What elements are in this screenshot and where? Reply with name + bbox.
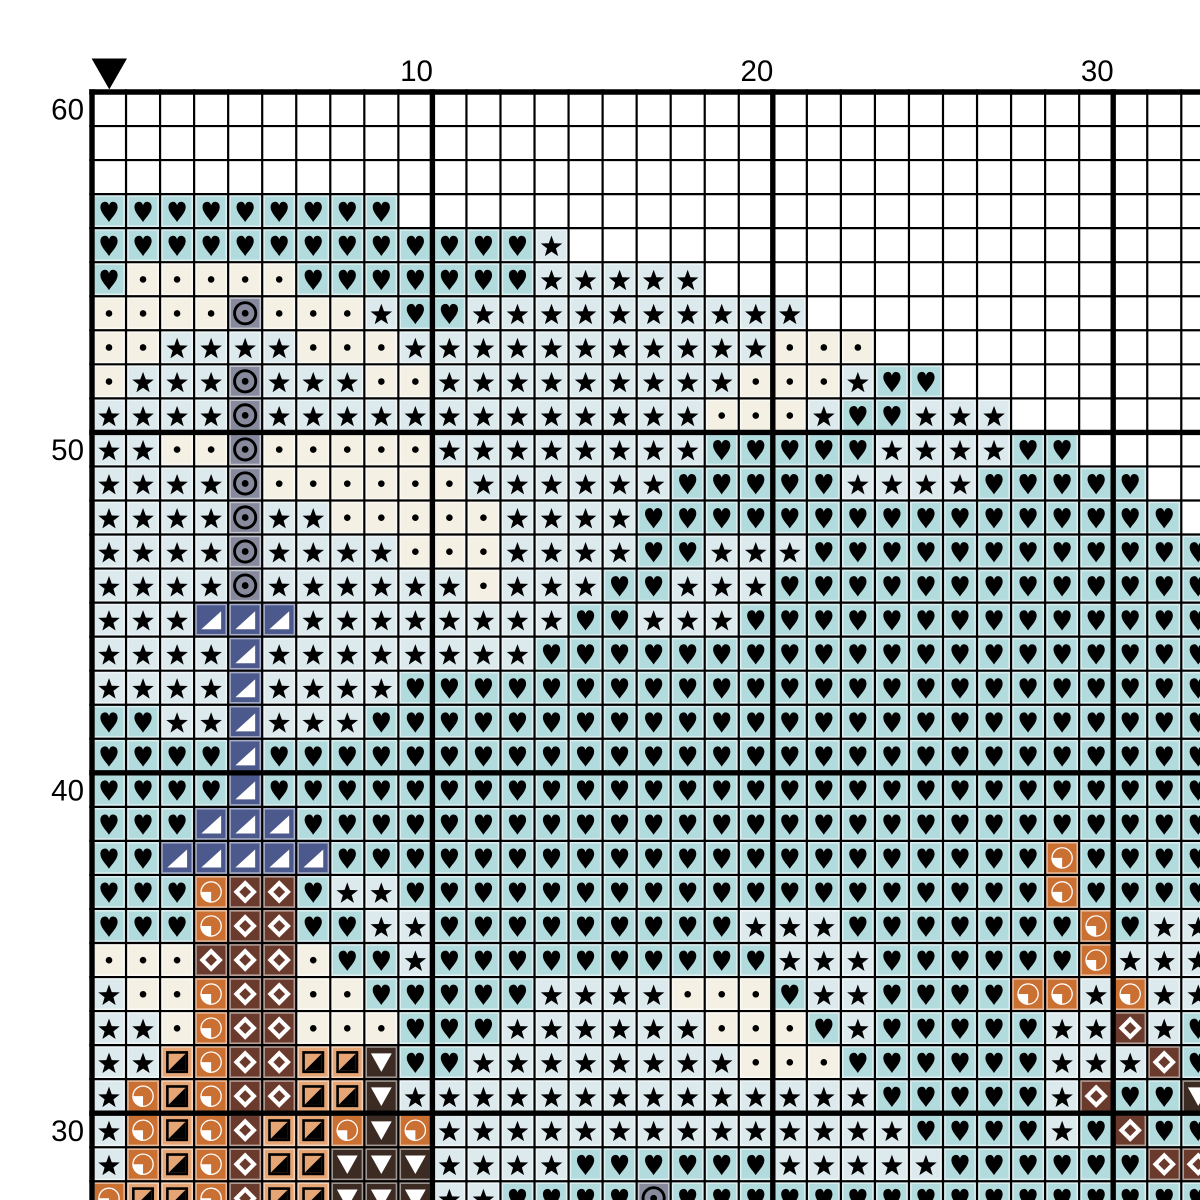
svg-text:40: 40 — [51, 774, 84, 807]
svg-text:60: 60 — [51, 94, 84, 127]
svg-text:30: 30 — [51, 1115, 84, 1148]
svg-text:50: 50 — [51, 434, 84, 467]
svg-text:30: 30 — [1081, 55, 1114, 88]
svg-text:10: 10 — [400, 55, 433, 88]
svg-text:20: 20 — [740, 55, 773, 88]
